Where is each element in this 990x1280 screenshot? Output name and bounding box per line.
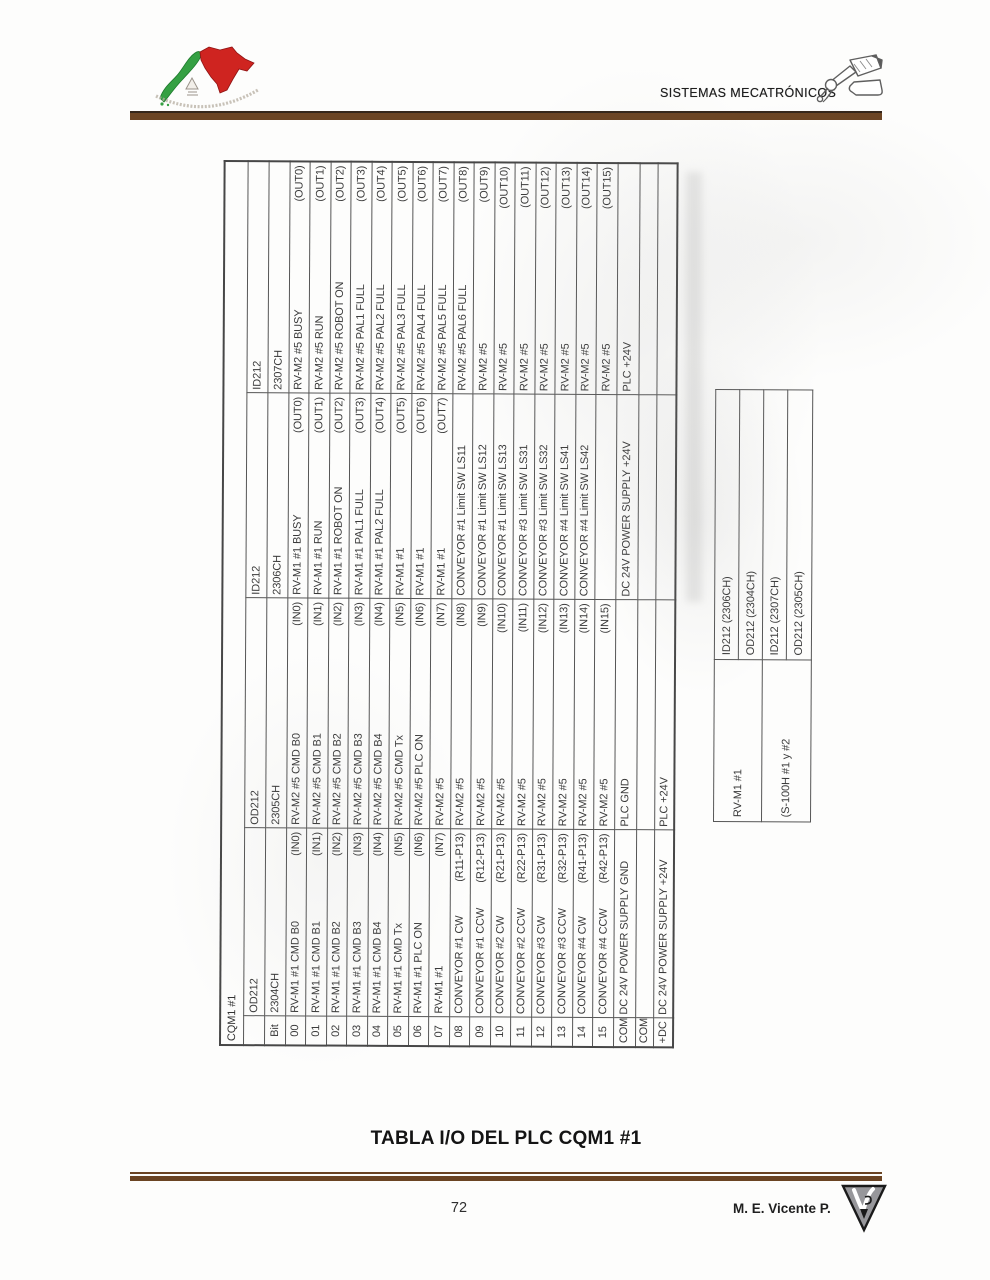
- io-cell: PLC +24V: [616, 163, 639, 395]
- io-cell-pin: (IN2): [331, 832, 343, 856]
- io-cell-pin: (OUT7): [436, 398, 448, 434]
- io-cell-pin: (OUT3): [354, 397, 366, 433]
- io-cell-label: RV-M2 #5: [477, 343, 489, 391]
- io-cell: RV-M1 #1(OUT7): [431, 394, 453, 599]
- io-cell: RV-M2 #5 CMD B0(IN0): [286, 598, 308, 828]
- school-emblem-logo: [148, 34, 266, 123]
- io-cell-pin: (R22-P13): [516, 833, 528, 883]
- bit-cell: 08: [449, 1017, 470, 1046]
- io-cell-pin: (R41-P13): [577, 833, 589, 883]
- io-cell-label: RV-M2 #5 CMD B3: [352, 733, 364, 825]
- io-cell: RV-M1 #1 PAL2 FULL(OUT4): [369, 394, 391, 599]
- io-cell: DC 24V POWER SUPPLY +24V: [615, 395, 638, 600]
- io-cell-label: RV-M2 #5: [559, 343, 571, 391]
- io-cell-pin: (OUT1): [314, 165, 326, 201]
- io-cell-label: RV-M2 #5 PLC ON: [413, 734, 425, 825]
- io-cell: RV-M2 #5 CMD B3(IN3): [348, 599, 370, 829]
- io-cell-label: RV-M1 #1: [415, 548, 427, 596]
- io-cell-label: CONVEYOR #1 Limit SW LS11: [456, 445, 469, 596]
- io-cell-label: RV-M2 #5 PAL1 FULL: [354, 284, 367, 390]
- io-cell-label: CONVEYOR #1 Limit SW LS12: [476, 444, 489, 596]
- io-cell: PLC +24V: [654, 600, 675, 830]
- io-cell: CONVEYOR #4 CW(R41-P13): [572, 830, 593, 1018]
- bit-cell: 13: [552, 1018, 573, 1047]
- io-cell-pin: (OUT3): [355, 166, 367, 202]
- io-cell-label: RV-M2 #5: [434, 778, 446, 826]
- io-cell-label: RV-M2 #5 PAL4 FULL: [416, 285, 429, 391]
- io-cell-pin: (IN8): [455, 603, 467, 627]
- io-cell-label: RV-M1 #1 CMD Tx: [392, 923, 404, 1013]
- io-cell-label: RV-M2 #5 CMD B4: [372, 733, 384, 825]
- io-cell: RV-M2 #5 PLC ON(IN6): [409, 599, 431, 829]
- io-cell-pin: (OUT0): [294, 165, 306, 201]
- scan-streak-artifact: [686, 172, 702, 602]
- io-cell-pin: (OUT1): [313, 397, 325, 433]
- io-cell: RV-M2 #5(OUT15): [596, 163, 618, 395]
- document-page: { "header": { "title": "SISTEMAS MECATRÓ…: [0, 0, 990, 1280]
- io-cell: CONVEYOR #1 CW(R11-P13): [449, 829, 470, 1017]
- io-cell: [635, 830, 654, 1018]
- bit-cell: 12: [531, 1018, 552, 1047]
- io-cell-label: RV-M1 #1 CMD B1: [310, 921, 322, 1013]
- io-cell-label: RV-M1 #1 CMD B0: [289, 921, 301, 1013]
- io-cell: RV-M1 #1 PLC ON(IN6): [408, 829, 429, 1017]
- io-cell-pin: (IN4): [373, 602, 385, 626]
- io-cell-pin: (OUT8): [458, 166, 470, 202]
- io-cell: RV-M2 #5 CMD Tx(IN5): [389, 599, 411, 829]
- io-cell-label: RV-M2 #5: [518, 343, 530, 391]
- io-cell-label: CONVEYOR #3 Limit SW LS32: [538, 445, 551, 597]
- robot-channel-legend-table: RV-M1 #1ID212 (2306CH)OD212 (2304CH)(S-1…: [713, 390, 812, 823]
- channel-header-cell: 2307CH: [267, 161, 289, 393]
- io-cell: RV-M2 #5 PAL3 FULL(OUT5): [391, 162, 413, 394]
- bit-cell: 11: [511, 1018, 532, 1047]
- robot-arm-icon: [812, 46, 886, 115]
- header-rule: [130, 111, 882, 120]
- io-cell: RV-M2 #5 PAL2 FULL(OUT4): [370, 162, 392, 394]
- io-cell-pin: (OUT6): [417, 166, 429, 202]
- card-header-cell: OD212: [243, 828, 265, 1016]
- io-cell-pin: (OUT0): [292, 397, 304, 433]
- table-caption: TABLA I/O DEL PLC CQM1 #1: [130, 1128, 882, 1150]
- io-cell-label: PLC GND: [619, 778, 631, 826]
- bit-corner-cell: [243, 1016, 264, 1045]
- io-cell-pin: (R11-P13): [454, 833, 466, 882]
- io-cell: RV-M1 #1 CMD B4(IN4): [367, 829, 388, 1017]
- io-cell-pin: (IN7): [435, 603, 447, 627]
- io-cell-pin: (OUT11): [519, 167, 531, 208]
- io-cell: RV-M1 #1 PAL1 FULL(OUT3): [349, 394, 371, 599]
- io-cell-label: CONVEYOR #4 Limit SW LS41: [558, 445, 571, 597]
- io-cell-pin: (R12-P13): [475, 833, 487, 883]
- io-cell-label: RV-M2 #5: [454, 778, 466, 826]
- bit-cell: 06: [408, 1017, 429, 1046]
- io-cell-label: RV-M1 #1 CMD B3: [351, 921, 363, 1013]
- bit-cell: 07: [429, 1017, 450, 1046]
- io-cell-label: RV-M1 #1 PAL1 FULL: [353, 489, 366, 595]
- io-cell-label: RV-M1 #1: [394, 547, 406, 595]
- io-cell-label: RV-M2 #5 RUN: [313, 316, 325, 390]
- bit-cell: 05: [388, 1017, 409, 1046]
- io-cell-label: RV-M1 #1 ROBOT ON: [333, 487, 346, 596]
- io-cell-label: RV-M2 #5: [539, 343, 551, 391]
- io-cell-label: RV-M2 #5 BUSY: [293, 309, 305, 389]
- legend-channel-cell: ID212 (2306CH): [714, 390, 739, 660]
- plc-io-table: CQM1 #1OD212OD212ID212ID212Bit2304CH2305…: [219, 160, 679, 1048]
- io-cell: CONVEYOR #2 CCW(R22-P13): [511, 830, 532, 1018]
- io-cell: RV-M1 #1(OUT6): [410, 394, 432, 599]
- io-cell: RV-M2 #5(IN14): [573, 600, 595, 830]
- io-cell: RV-M1 #1 RUN(OUT1): [308, 393, 330, 598]
- io-cell: RV-M2 #5 PAL1 FULL(OUT3): [350, 162, 372, 394]
- io-cell-label: CONVEYOR #2 CCW: [515, 908, 528, 1014]
- io-cell-pin: (IN2): [332, 602, 344, 626]
- io-cell: RV-M1 #1 BUSY(OUT0): [287, 393, 309, 598]
- io-cell: RV-M2 #5 BUSY(OUT0): [288, 161, 310, 393]
- bit-cell: 14: [572, 1018, 593, 1047]
- io-cell: RV-M2 #5(IN11): [512, 600, 534, 830]
- io-cell: CONVEYOR #4 Limit SW LS42: [574, 395, 596, 600]
- io-cell: RV-M2 #5 PAL5 FULL(OUT7): [432, 162, 454, 394]
- io-cell: [637, 395, 656, 600]
- io-cell-pin: (OUT9): [478, 166, 490, 202]
- io-cell-label: RV-M1 #1: [435, 548, 447, 596]
- io-cell-label: CONVEYOR #1 Limit SW LS13: [497, 444, 510, 596]
- io-cell-label: DC 24V POWER SUPPLY GND: [618, 861, 631, 1015]
- io-cell-pin: (OUT5): [396, 166, 408, 202]
- io-cell: RV-M2 #5(IN12): [532, 600, 554, 830]
- io-cell: RV-M2 #5(IN7): [430, 599, 452, 829]
- bit-cell: 02: [326, 1017, 347, 1046]
- io-cell-pin: (OUT15): [601, 167, 613, 209]
- io-cell-pin: (IN4): [372, 832, 384, 856]
- io-cell: RV-M2 #5 ROBOT ON(OUT2): [329, 162, 351, 394]
- io-cell: RV-M2 #5(OUT13): [555, 163, 577, 395]
- io-cell-label: RV-M2 #5: [580, 343, 592, 391]
- io-cell: PLC GND: [614, 600, 637, 830]
- io-cell-pin: (IN0): [290, 832, 302, 856]
- io-cell-label: CONVEYOR #3 Limit SW LS31: [517, 444, 530, 596]
- io-cell: RV-M2 #5(IN10): [491, 599, 513, 829]
- io-cell-label: RV-M2 #5: [498, 343, 510, 391]
- io-cell-label: RV-M2 #5 CMD B2: [331, 733, 343, 825]
- io-cell-label: CONVEYOR #4 CW: [576, 916, 589, 1014]
- io-cell-label: CONVEYOR #1 CCW: [474, 908, 487, 1014]
- io-cell: RV-M2 #5(IN13): [553, 600, 575, 830]
- io-cell-label: DC 24V POWER SUPPLY +24V: [657, 860, 670, 1015]
- io-cell-label: RV-M1 #1 CMD B4: [371, 921, 383, 1013]
- io-cell-pin: (OUT4): [374, 397, 386, 433]
- io-cell-pin: (IN5): [393, 832, 405, 856]
- io-cell: RV-M2 #5(OUT11): [514, 163, 536, 395]
- io-cell-pin: (OUT14): [581, 167, 593, 209]
- io-cell-pin: (IN5): [394, 602, 406, 626]
- io-cell: [655, 395, 676, 600]
- io-cell-label: RV-M2 #5: [577, 778, 589, 826]
- page-header-title: SISTEMAS MECATRÓNICOS: [660, 86, 836, 100]
- io-cell-label: CONVEYOR #2 CW: [494, 916, 507, 1014]
- io-cell-pin: (IN6): [414, 603, 426, 627]
- io-cell: RV-M2 #5(OUT14): [575, 163, 597, 395]
- io-cell: RV-M2 #5(IN8): [450, 599, 472, 829]
- io-cell-pin: (OUT4): [376, 166, 388, 202]
- legend-row: RV-M1 #1ID212 (2306CH): [714, 390, 740, 822]
- io-cell: CONVEYOR #3 Limit SW LS32: [533, 395, 555, 600]
- io-cell-pin: (R32-P13): [557, 833, 569, 883]
- io-cell: RV-M1 #1(IN7): [429, 829, 450, 1017]
- io-cell: [656, 163, 677, 395]
- io-cell-label: CONVEYOR #3 CW: [535, 916, 548, 1014]
- io-cell: RV-M2 #5(OUT10): [493, 162, 515, 394]
- io-cell-pin: (IN1): [311, 832, 323, 856]
- io-cell-label: RV-M2 #5: [516, 778, 528, 826]
- io-cell-label: RV-M2 #5 PAL3 FULL: [395, 284, 408, 390]
- bit-header-cell: Bit: [264, 1016, 285, 1045]
- plc-io-table-rotated: CQM1 #1OD212OD212ID212ID212Bit2304CH2305…: [219, 162, 677, 1048]
- io-cell-label: RV-M2 #5: [475, 778, 487, 826]
- io-cell: DC 24V POWER SUPPLY GND: [613, 830, 636, 1018]
- bit-cell: 00: [285, 1016, 306, 1045]
- io-cell: RV-M2 #5 RUN(OUT1): [309, 161, 331, 393]
- io-cell-label: CONVEYOR #1 CW: [453, 915, 466, 1013]
- io-cell: RV-M1 #1 CMD Tx(IN5): [388, 829, 409, 1017]
- io-cell-pin: (R21-P13): [495, 833, 507, 883]
- io-cell: DC 24V POWER SUPPLY +24V: [653, 830, 674, 1018]
- io-cell-label: RV-M2 #5 CMD B1: [311, 733, 323, 825]
- legend-row: (S-100H #1 y #2ID212 (2307CH): [762, 390, 788, 822]
- bit-cell: 10: [490, 1017, 511, 1046]
- io-cell: RV-M1 #1 ROBOT ON(OUT2): [328, 394, 350, 599]
- legend-channel-cell: ID212 (2307CH): [762, 390, 787, 660]
- io-cell: RV-M2 #5 CMD B2(IN2): [327, 599, 349, 829]
- io-cell-pin: (OUT10): [499, 166, 511, 208]
- channel-header-cell: 2305CH: [265, 598, 287, 828]
- io-cell-pin: (IN9): [476, 603, 488, 627]
- io-cell-label: CONVEYOR #4 Limit SW LS42: [579, 445, 592, 597]
- io-cell-label: RV-M2 #5: [536, 778, 548, 826]
- io-cell: RV-M2 #5(IN15): [594, 600, 616, 830]
- bit-cell: +DC: [653, 1018, 673, 1047]
- io-table-row: +DCDC 24V POWER SUPPLY +24VPLC +24V: [653, 163, 678, 1047]
- io-cell-label: RV-M1 #1 PLC ON: [412, 922, 424, 1013]
- japan-mexico-emblem-icon: [148, 34, 266, 118]
- io-cell: RV-M1 #1 CMD B0(IN0): [285, 828, 306, 1016]
- io-cell-pin: (IN3): [353, 602, 365, 626]
- io-cell: CONVEYOR #1 Limit SW LS11: [451, 394, 473, 599]
- io-cell-pin: (OUT2): [333, 397, 345, 433]
- legend-device-cell: RV-M1 #1: [714, 660, 763, 822]
- io-cell-label: RV-M2 #5: [495, 778, 507, 826]
- io-cell-pin: (IN10): [496, 603, 508, 633]
- bit-cell: COM: [613, 1018, 635, 1047]
- io-cell-pin: (IN6): [413, 833, 425, 857]
- io-cell-pin: (OUT2): [335, 166, 347, 202]
- io-cell-label: RV-M2 #5 PAL5 FULL: [436, 285, 449, 391]
- card-header-cell: ID212: [245, 393, 267, 598]
- io-cell-label: RV-M2 #5 CMD Tx: [393, 735, 405, 825]
- io-cell-pin: (IN12): [537, 603, 549, 633]
- io-cell-pin: (OUT13): [560, 167, 572, 209]
- io-cell-label: RV-M1 #1 RUN: [312, 521, 324, 595]
- io-cell: RV-M2 #5 PAL6 FULL(OUT8): [452, 162, 474, 394]
- bit-cell: COM: [635, 1018, 653, 1047]
- io-cell-label: PLC +24V: [621, 342, 633, 392]
- card-header-cell: OD212: [244, 598, 266, 828]
- io-cell-label: PLC +24V: [658, 777, 670, 827]
- io-cell: RV-M1 #1 CMD B1(IN1): [306, 828, 327, 1016]
- io-cell: RV-M1 #1 CMD B3(IN3): [347, 829, 368, 1017]
- io-cell-label: RV-M1 #1 CMD B2: [330, 921, 342, 1013]
- io-cell-pin: (OUT6): [415, 398, 427, 434]
- io-cell-label: RV-M2 #5: [598, 779, 610, 827]
- bit-cell: 01: [306, 1016, 327, 1045]
- io-cell-pin: (R31-P13): [536, 833, 548, 883]
- io-cell: CONVEYOR #2 CW(R21-P13): [490, 829, 511, 1017]
- io-cell-pin: (IN15): [599, 603, 611, 633]
- io-cell: CONVEYOR #3 CCW(R32-P13): [552, 830, 573, 1018]
- card-header-cell: ID212: [246, 161, 268, 393]
- io-cell-pin: (IN13): [558, 603, 570, 633]
- io-cell-label: RV-M2 #5 PAL6 FULL: [457, 285, 470, 391]
- io-cell: CONVEYOR #3 Limit SW LS31: [513, 395, 535, 600]
- io-cell: [638, 163, 657, 395]
- io-cell-label: RV-M2 #5 CMD B0: [290, 733, 302, 825]
- io-cell: RV-M2 #5 CMD B1(IN1): [307, 598, 329, 828]
- legend-device-cell: (S-100H #1 y #2: [762, 660, 812, 822]
- channel-header-cell: 2304CH: [264, 828, 286, 1016]
- io-cell: RV-M1 #1(OUT5): [390, 394, 412, 599]
- io-cell-label: CONVEYOR #4 CCW: [597, 908, 610, 1014]
- io-cell-label: RV-M2 #5: [600, 344, 612, 392]
- io-cell: CONVEYOR #1 Limit SW LS13: [492, 394, 514, 599]
- io-cell: RV-M2 #5(IN9): [471, 599, 493, 829]
- io-cell-pin: (IN3): [352, 832, 364, 856]
- io-cell-label: RV-M2 #5: [557, 778, 569, 826]
- io-cell: CONVEYOR #4 CCW(R42-P13): [593, 830, 614, 1018]
- io-cell-pin: (OUT12): [540, 167, 552, 209]
- io-cell-pin: (IN11): [517, 603, 529, 632]
- legend-table: RV-M1 #1ID212 (2306CH)OD212 (2304CH)(S-1…: [713, 389, 813, 823]
- legend-channel-cell: OD212 (2305CH): [786, 390, 812, 660]
- io-cell: RV-M2 #5 PAL4 FULL(OUT6): [411, 162, 433, 394]
- io-cell: CONVEYOR #1 CCW(R12-P13): [470, 829, 491, 1017]
- io-cell-pin: (OUT5): [395, 397, 407, 433]
- io-cell: [636, 600, 655, 830]
- page-number: 72: [404, 1200, 514, 1216]
- io-cell-label: DC 24V POWER SUPPLY +24V: [620, 441, 633, 596]
- io-cell-label: RV-M2 #5 ROBOT ON: [334, 282, 347, 391]
- io-cell: RV-M2 #5(OUT9): [473, 162, 495, 394]
- io-cell-pin: (IN14): [578, 603, 590, 633]
- bit-cell: 04: [367, 1017, 388, 1046]
- io-cell-label: CONVEYOR #3 CCW: [556, 908, 569, 1014]
- io-cell: RV-M1 #1 CMD B2(IN2): [326, 829, 347, 1017]
- bit-cell: 09: [470, 1017, 491, 1046]
- channel-header-cell: 2306CH: [266, 393, 288, 598]
- io-cell-pin: (IN1): [312, 602, 324, 626]
- io-cell-pin: (IN7): [434, 833, 446, 857]
- io-cell: RV-M2 #5(OUT12): [534, 163, 556, 395]
- io-cell-label: RV-M1 #1 BUSY: [292, 514, 304, 594]
- io-cell-label: RV-M2 #5 PAL2 FULL: [375, 284, 388, 390]
- footer-rule: [130, 1172, 882, 1181]
- io-cell: CONVEYOR #3 CW(R31-P13): [531, 830, 552, 1018]
- io-cell: CONVEYOR #1 Limit SW LS12: [472, 394, 494, 599]
- io-cell-pin: (OUT7): [437, 166, 449, 202]
- io-cell-label: RV-M1 #1 PAL2 FULL: [374, 489, 387, 595]
- io-cell-label: RV-M1 #1: [433, 966, 445, 1014]
- io-cell: CONVEYOR #4 Limit SW LS41: [554, 395, 576, 600]
- bit-cell: 15: [593, 1018, 614, 1047]
- io-cell-pin: (R42-P13): [598, 833, 610, 883]
- io-cell-pin: (IN0): [291, 602, 303, 626]
- bit-cell: 03: [347, 1017, 368, 1046]
- io-cell: [595, 395, 617, 600]
- author-name: M. E. Vicente P.: [733, 1201, 831, 1216]
- io-cell: RV-M2 #5 CMD B4(IN4): [368, 599, 390, 829]
- legend-channel-cell: OD212 (2304CH): [738, 390, 763, 660]
- vp-triangle-icon: [841, 1181, 887, 1238]
